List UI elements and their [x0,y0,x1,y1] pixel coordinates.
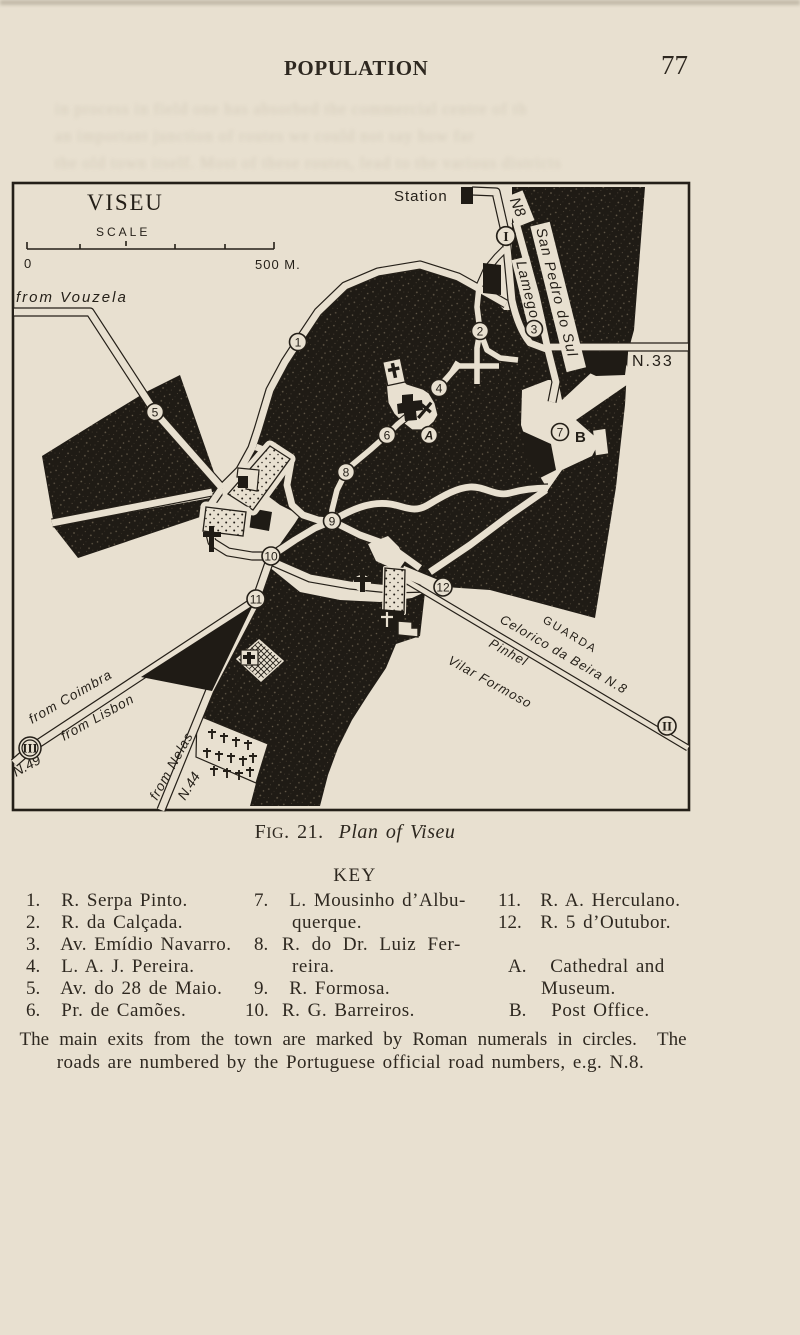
svg-text:12: 12 [436,581,450,595]
svg-text:0: 0 [24,256,31,271]
svg-text:9: 9 [329,515,336,529]
svg-text:6: 6 [384,429,391,443]
svg-text:III: III [22,741,37,756]
svg-text:8: 8 [343,466,350,480]
svg-text:B: B [575,429,586,446]
svg-text:7: 7 [557,426,564,440]
svg-text:from Vouzela: from Vouzela [16,289,128,306]
svg-text:5: 5 [152,406,159,420]
svg-text:II: II [662,719,672,734]
svg-text:Station: Station [394,188,448,205]
svg-text:VISEU: VISEU [87,190,164,215]
svg-text:2: 2 [477,325,484,339]
svg-text:3: 3 [531,323,538,337]
svg-text:N.33: N.33 [632,353,674,370]
svg-text:10: 10 [264,550,278,564]
svg-text:I: I [503,230,508,245]
svg-text:A: A [424,429,434,443]
svg-text:500 M.: 500 M. [255,257,301,272]
svg-text:4: 4 [436,382,443,396]
svg-text:SCALE: SCALE [96,225,150,239]
svg-text:11: 11 [250,593,263,607]
svg-text:1: 1 [295,336,302,350]
